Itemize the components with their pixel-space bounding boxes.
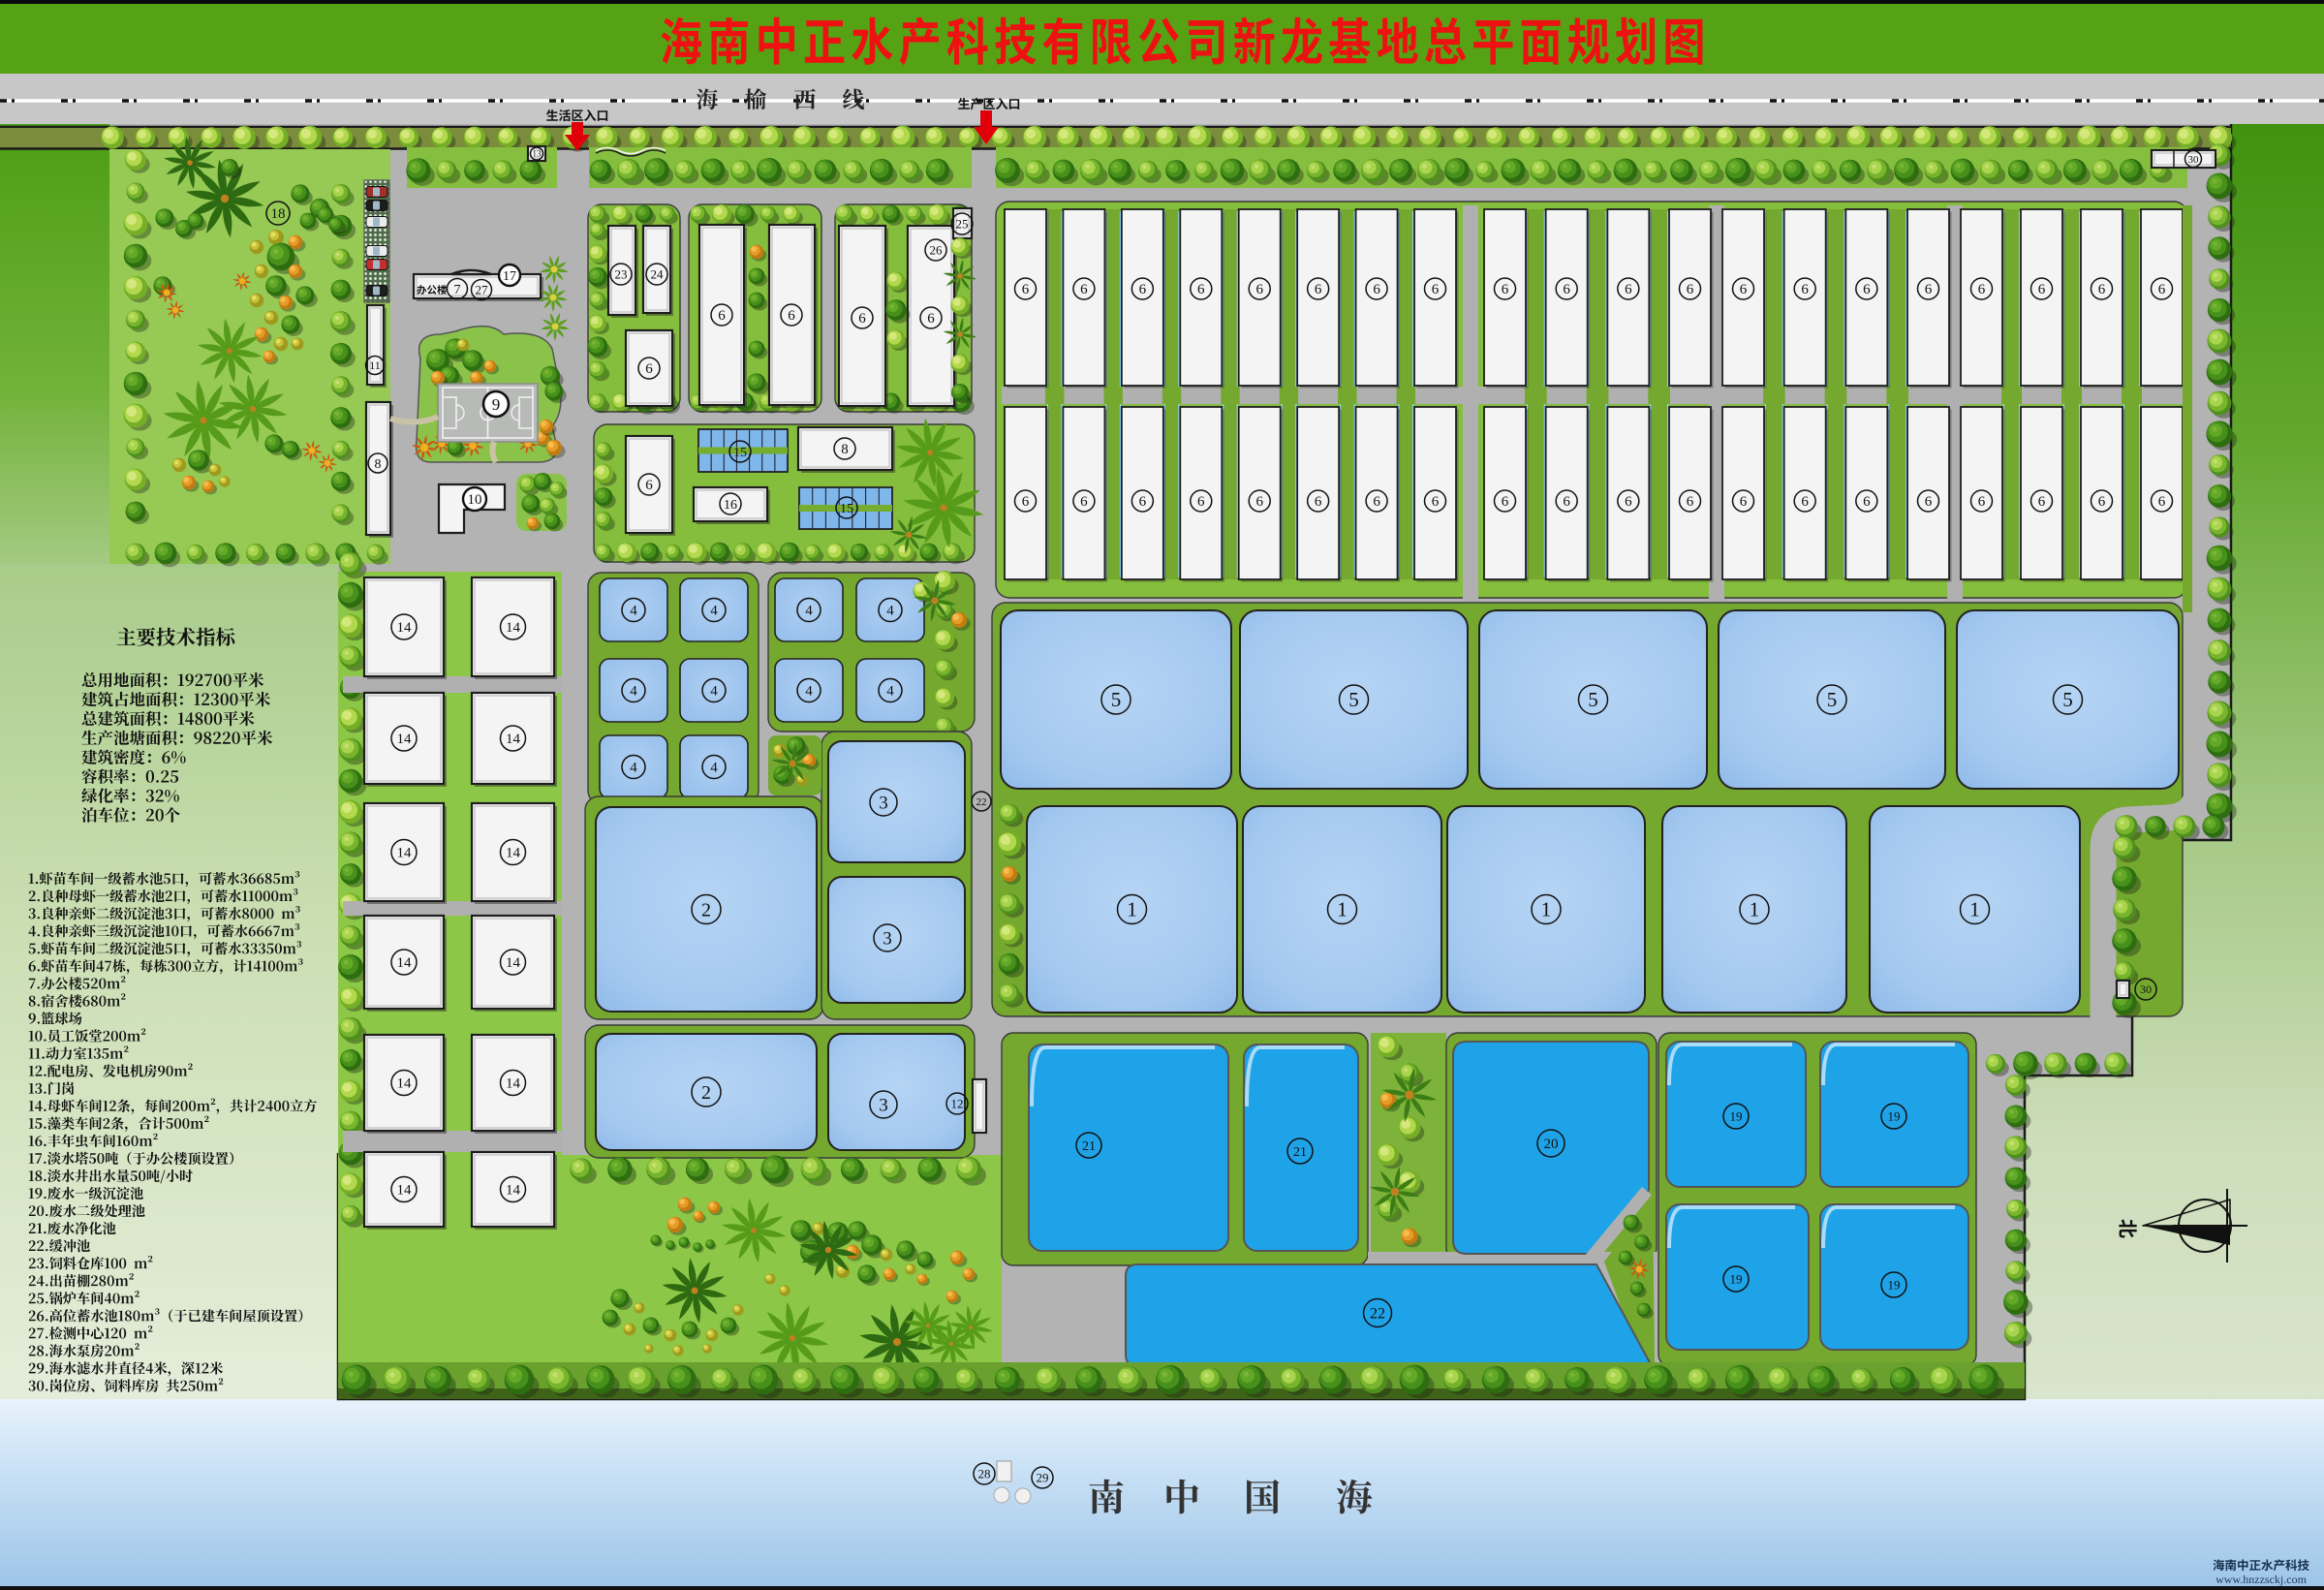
svg-text:21: 21 bbox=[1293, 1145, 1307, 1160]
svg-text:8: 8 bbox=[375, 457, 382, 472]
svg-text:7: 7 bbox=[454, 283, 461, 297]
svg-text:8: 8 bbox=[841, 442, 849, 457]
svg-text:13: 13 bbox=[533, 149, 542, 159]
svg-text:6: 6 bbox=[1197, 282, 1205, 297]
svg-text:3: 3 bbox=[883, 929, 892, 950]
svg-text:14: 14 bbox=[397, 846, 413, 861]
svg-text:6: 6 bbox=[1863, 494, 1871, 510]
svg-text:14: 14 bbox=[397, 620, 413, 636]
svg-text:30: 30 bbox=[2140, 982, 2152, 996]
svg-text:6: 6 bbox=[1373, 282, 1380, 297]
svg-text:2: 2 bbox=[701, 1082, 711, 1104]
svg-text:6: 6 bbox=[1432, 282, 1440, 297]
svg-text:22: 22 bbox=[976, 796, 987, 808]
svg-text:14: 14 bbox=[506, 846, 521, 861]
svg-text:6: 6 bbox=[2038, 282, 2046, 297]
svg-text:6: 6 bbox=[1925, 282, 1933, 297]
svg-text:6: 6 bbox=[1863, 282, 1871, 297]
svg-text:12: 12 bbox=[951, 1096, 964, 1110]
svg-text:5: 5 bbox=[1588, 688, 1598, 711]
svg-text:6: 6 bbox=[645, 478, 653, 493]
svg-text:17: 17 bbox=[503, 269, 516, 284]
svg-text:5: 5 bbox=[1348, 688, 1359, 711]
svg-text:6: 6 bbox=[1625, 494, 1632, 510]
svg-text:15: 15 bbox=[733, 446, 747, 460]
svg-text:6: 6 bbox=[1740, 282, 1748, 297]
svg-text:16: 16 bbox=[724, 498, 737, 513]
svg-text:6: 6 bbox=[1978, 282, 1986, 297]
svg-text:4: 4 bbox=[886, 684, 894, 700]
svg-text:6: 6 bbox=[1502, 282, 1509, 297]
svg-text:19: 19 bbox=[1730, 1271, 1743, 1286]
svg-text:11: 11 bbox=[369, 359, 381, 372]
svg-text:18: 18 bbox=[271, 206, 286, 222]
svg-text:6: 6 bbox=[1373, 494, 1380, 510]
svg-text:6: 6 bbox=[1687, 494, 1694, 510]
svg-text:6: 6 bbox=[1315, 282, 1322, 297]
svg-text:4: 4 bbox=[886, 604, 894, 619]
svg-text:6: 6 bbox=[1255, 494, 1263, 510]
svg-text:19: 19 bbox=[1730, 1108, 1743, 1123]
svg-text:4: 4 bbox=[805, 684, 813, 700]
svg-text:6: 6 bbox=[927, 311, 935, 327]
svg-text:4: 4 bbox=[630, 761, 637, 776]
svg-text:4: 4 bbox=[710, 604, 718, 619]
svg-text:4: 4 bbox=[630, 684, 637, 700]
svg-text:6: 6 bbox=[1080, 494, 1088, 510]
svg-text:1: 1 bbox=[1969, 898, 1980, 921]
svg-text:21: 21 bbox=[1082, 1139, 1096, 1154]
svg-text:1: 1 bbox=[1127, 898, 1137, 921]
svg-text:www.hnzzsckj.com: www.hnzzsckj.com bbox=[2216, 1573, 2308, 1586]
svg-text:14: 14 bbox=[506, 732, 521, 747]
svg-text:10: 10 bbox=[468, 492, 482, 508]
svg-text:6: 6 bbox=[1687, 282, 1694, 297]
svg-text:6: 6 bbox=[1255, 282, 1263, 297]
svg-text:28: 28 bbox=[978, 1466, 991, 1481]
svg-text:6: 6 bbox=[1563, 494, 1570, 510]
svg-text:5: 5 bbox=[2062, 688, 2073, 711]
svg-text:4: 4 bbox=[710, 761, 718, 776]
svg-text:4: 4 bbox=[710, 684, 718, 700]
svg-text:6: 6 bbox=[1197, 494, 1205, 510]
svg-text:6: 6 bbox=[1801, 282, 1809, 297]
svg-text:29: 29 bbox=[1037, 1470, 1049, 1484]
svg-text:6: 6 bbox=[1801, 494, 1809, 510]
svg-text:24: 24 bbox=[651, 266, 665, 281]
svg-text:6: 6 bbox=[1625, 282, 1632, 297]
svg-text:6: 6 bbox=[718, 308, 726, 324]
svg-text:6: 6 bbox=[1563, 282, 1570, 297]
svg-text:6: 6 bbox=[1022, 494, 1030, 510]
svg-text:14: 14 bbox=[397, 1183, 413, 1199]
svg-text:6: 6 bbox=[1432, 494, 1440, 510]
svg-text:4: 4 bbox=[805, 604, 813, 619]
svg-text:22: 22 bbox=[1370, 1306, 1385, 1323]
svg-text:6: 6 bbox=[2098, 282, 2106, 297]
svg-text:15: 15 bbox=[840, 502, 853, 516]
svg-text:26: 26 bbox=[930, 242, 944, 257]
svg-text:6: 6 bbox=[2098, 494, 2106, 510]
svg-text:14: 14 bbox=[506, 1076, 521, 1092]
svg-text:3: 3 bbox=[879, 1096, 888, 1116]
svg-text:6: 6 bbox=[2158, 494, 2166, 510]
svg-text:6: 6 bbox=[788, 308, 795, 324]
svg-text:14: 14 bbox=[397, 732, 413, 747]
svg-text:14: 14 bbox=[397, 955, 413, 971]
svg-text:6: 6 bbox=[1502, 494, 1509, 510]
svg-text:4: 4 bbox=[630, 604, 637, 619]
svg-text:6: 6 bbox=[1022, 282, 1030, 297]
svg-text:14: 14 bbox=[506, 1183, 521, 1199]
svg-text:6: 6 bbox=[858, 311, 866, 327]
svg-text:6: 6 bbox=[1925, 494, 1933, 510]
svg-text:6: 6 bbox=[1139, 282, 1147, 297]
svg-text:6: 6 bbox=[1315, 494, 1322, 510]
svg-text:6: 6 bbox=[2158, 282, 2166, 297]
svg-text:9: 9 bbox=[492, 395, 501, 414]
svg-text:23: 23 bbox=[615, 266, 628, 281]
svg-text:5: 5 bbox=[1111, 688, 1122, 711]
svg-text:6: 6 bbox=[1139, 494, 1147, 510]
svg-text:27: 27 bbox=[476, 282, 489, 296]
svg-text:6: 6 bbox=[2038, 494, 2046, 510]
svg-text:6: 6 bbox=[1080, 282, 1088, 297]
svg-text:3: 3 bbox=[879, 794, 888, 814]
svg-text:1: 1 bbox=[1337, 898, 1348, 921]
svg-text:6: 6 bbox=[1978, 494, 1986, 510]
svg-text:1: 1 bbox=[1750, 898, 1760, 921]
svg-text:14: 14 bbox=[397, 1076, 413, 1092]
svg-text:6: 6 bbox=[645, 361, 653, 377]
svg-text:25: 25 bbox=[956, 216, 969, 231]
svg-text:14: 14 bbox=[506, 620, 521, 636]
svg-text:6: 6 bbox=[1740, 494, 1748, 510]
svg-text:30: 30 bbox=[2188, 154, 2200, 166]
svg-text:19: 19 bbox=[1888, 1108, 1901, 1123]
svg-text:20: 20 bbox=[1544, 1137, 1559, 1152]
svg-text:2: 2 bbox=[701, 899, 711, 920]
svg-text:5: 5 bbox=[1827, 688, 1838, 711]
svg-text:19: 19 bbox=[1888, 1277, 1901, 1292]
svg-text:14: 14 bbox=[506, 955, 521, 971]
svg-text:1: 1 bbox=[1541, 898, 1552, 921]
